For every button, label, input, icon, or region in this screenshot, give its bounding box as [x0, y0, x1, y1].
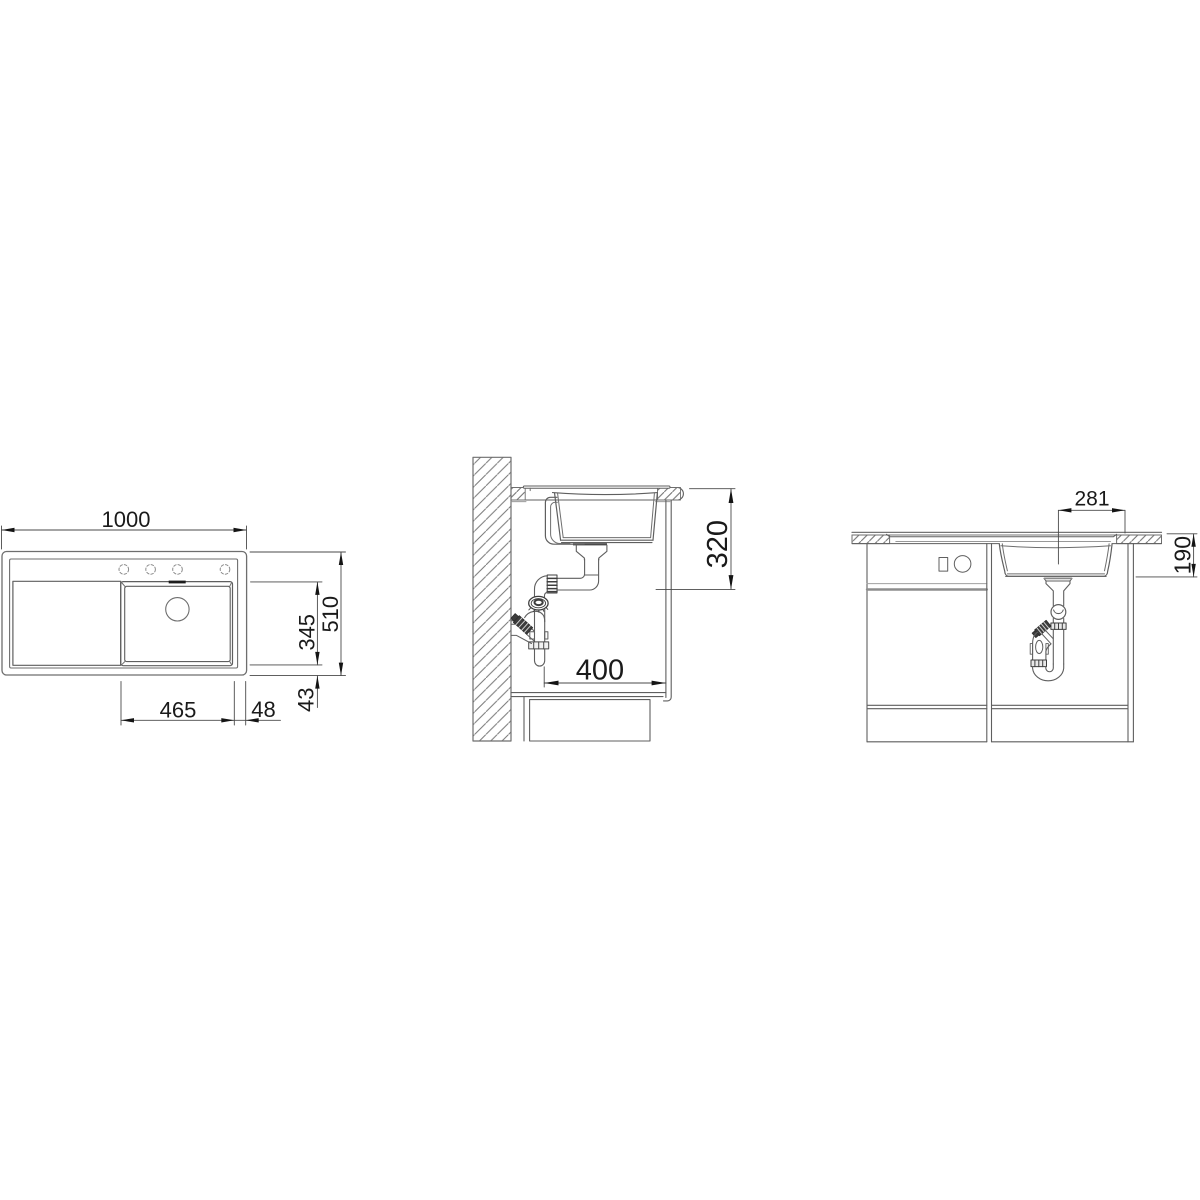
svg-text:281: 281: [1074, 488, 1109, 511]
svg-text:465: 465: [160, 698, 197, 723]
svg-text:48: 48: [251, 697, 275, 722]
svg-text:1000: 1000: [102, 507, 151, 532]
svg-text:345: 345: [295, 614, 320, 651]
svg-text:43: 43: [294, 688, 319, 712]
svg-text:510: 510: [318, 596, 343, 633]
svg-text:190: 190: [1170, 536, 1196, 574]
svg-text:320: 320: [702, 520, 734, 568]
svg-text:400: 400: [576, 655, 624, 687]
